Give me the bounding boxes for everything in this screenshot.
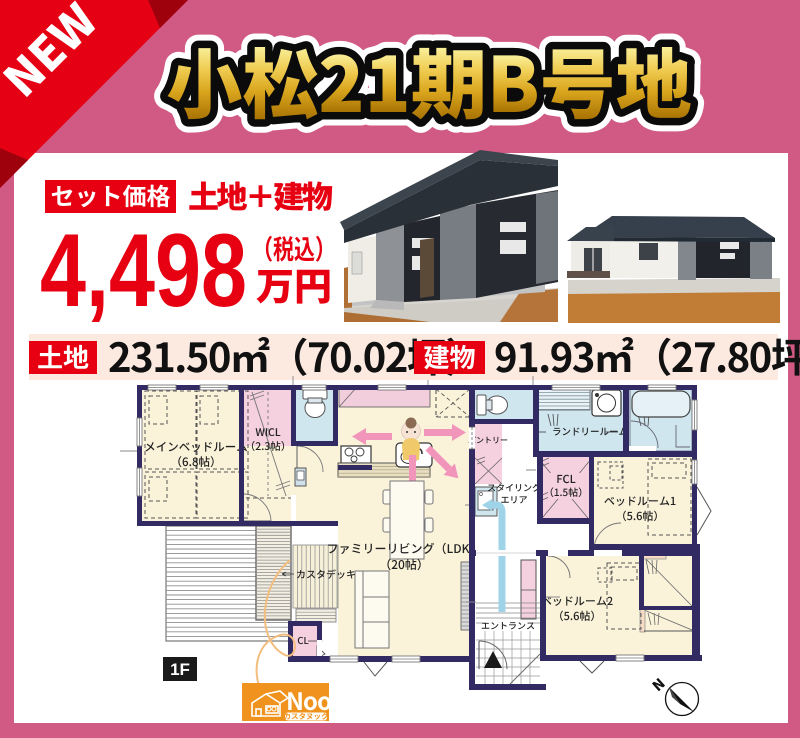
svg-text:1F: 1F (170, 660, 190, 679)
svg-text:4,498: 4,498 (40, 213, 247, 329)
